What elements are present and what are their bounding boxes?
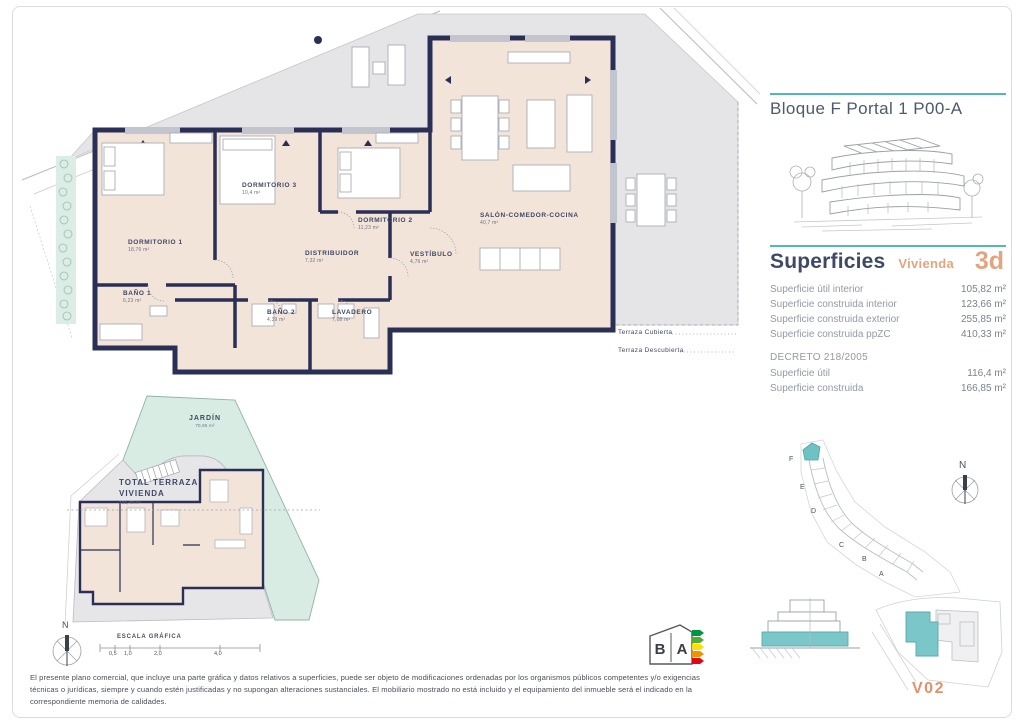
room-label-vestibulo: VESTÍBULO 4,76 m² [410,251,453,265]
block-letter-c: C [839,542,844,549]
block-letter-d: D [811,508,816,515]
room-name: BAÑO 1 [123,290,151,297]
superficies-row: Superficie construida ppZC 410,33 m² [770,327,1006,342]
room-label-salon-comedor-cocina: SALÓN-COMEDOR-COCINA 40,7 m² [480,212,579,226]
room-area: 18,76 m² [128,247,183,253]
building-section-diagram [750,596,862,674]
terraza-total-area: 131,48 m² [119,500,198,506]
decreto-heading: DECRETO 218/2005 [770,352,868,363]
row-value: 255,85 m² [961,312,1006,327]
energy-letter-a: A [677,641,688,658]
terraza-total-line2: VIVIENDA [119,489,165,498]
block-letter-b: B [862,556,867,563]
room-label-dormitorio-3: DORMITORIO 3 10,4 m² [242,182,297,196]
scale-tick: 4,0 [214,651,222,657]
room-name: DISTRIBUIDOR [305,250,359,257]
scale-tick: 2,0 [154,651,162,657]
decreto-table: Superficie útil 116,4 m² Superficie cons… [770,366,1006,396]
row-value: 105,82 m² [961,282,1006,297]
row-label: Superficie útil interior [770,282,863,297]
jardin-area: 70,95 m² [175,423,235,429]
scale-tick: 0,5 [109,651,117,657]
block-letter-a: A [879,571,884,578]
row-value: 166,85 m² [961,381,1006,396]
room-label-distribuidor: DISTRIBUIDOR 7,32 m² [305,250,359,264]
room-name: VESTÍBULO [410,251,453,258]
superficies-row: Superficie construida interior 123,66 m² [770,297,1006,312]
row-value: 410,33 m² [961,327,1006,342]
room-name: DORMITORIO 2 [358,217,413,224]
row-label: Superficie construida interior [770,297,897,312]
superficies-title: Superficies [770,250,885,273]
jardin-label: JARDÍN 70,95 m² [175,414,235,430]
superficies-header: Superficies Vivienda 3d [770,250,1006,274]
footer-disclaimer: El presente plano comercial, que incluye… [30,672,728,707]
room-label-dormitorio-2: DORMITORIO 2 11,23 m² [358,217,413,231]
highlighted-unit [906,612,938,656]
row-label: Superficie útil [770,366,830,381]
row-label: Superficie construida exterior [770,312,900,327]
row-label: Superficie construida [770,381,863,396]
escala-grafica-label: ESCALA GRÁFICA [117,634,182,640]
room-area: 6,23 m² [123,298,151,304]
room-area: 7,32 m² [305,258,359,264]
row-value: 116,4 m² [967,366,1006,381]
row-label: Superficie construida ppZC [770,327,891,342]
room-name: SALÓN-COMEDOR-COCINA [480,212,579,219]
room-area: 40,7 m² [480,220,579,226]
room-label-bano-1: BAÑO 1 6,23 m² [123,290,151,304]
room-label-bano-2: BAÑO 2 4,39 m² [267,309,295,323]
terraza-total-line1: TOTAL TERRAZA [119,478,198,487]
room-area: 4,39 m² [267,317,295,323]
room-area: 11,23 m² [358,225,413,231]
vivienda-code: 3d [975,247,1004,276]
room-name: DORMITORIO 3 [242,182,297,189]
block-letter-f: F [789,456,793,463]
room-label-dormitorio-1: DORMITORIO 1 18,76 m² [128,239,183,253]
block-letter-e: E [800,484,805,491]
room-name: LAVADERO [332,309,372,316]
building-illustration [772,124,1004,236]
decreto-row: Superficie construida 166,85 m² [770,381,1006,396]
site-location-map: N F E D C B A [765,432,1015,617]
room-name: BAÑO 2 [267,309,295,316]
jardin-name: JARDÍN [189,415,221,422]
room-area: 7,08 m² [332,317,372,323]
room-label-lavadero: LAVADERO 7,08 m² [332,309,372,323]
energy-letter-b: B [655,641,666,658]
superficies-row: Superficie útil interior 105,82 m² [770,282,1006,297]
terraza-cubierta-label: Terraza Cubierta [618,329,672,336]
highlighted-block-f [803,443,820,460]
teal-divider-superficies [770,245,1006,247]
room-name: DORMITORIO 1 [128,239,183,246]
row-value: 123,66 m² [961,297,1006,312]
room-area: 10,4 m² [242,190,297,196]
terraza-descubierta-label: Terraza Descubierta [618,347,684,354]
scale-tick: 1,0 [124,651,132,657]
decreto-row: Superficie útil 116,4 m² [770,366,1006,381]
vivienda-label: Vivienda [898,256,954,271]
teal-divider-top [770,93,1006,95]
sitemap-north-label: N [959,460,966,471]
unit-reference-label: V02 [912,680,945,698]
compass-north-label: N [62,620,69,630]
main-floorplan: DORMITORIO 1 18,76 m² DORMITORIO 2 11,23… [20,8,760,408]
superficies-table: Superficie útil interior 105,82 m² Super… [770,282,1006,342]
scale-area: N ESCALA GRÁFICA 0,5 1,0 2,0 4,0 [45,618,275,678]
compass-and-scalebar [45,618,275,678]
page-title: Bloque F Portal 1 P00-A [770,99,1006,119]
mini-siteplan: JARDÍN 70,95 m² TOTAL TERRAZA VIVIENDA 1… [35,390,345,645]
energy-rating-icon: B A [646,622,708,670]
highlighted-floor [762,632,848,646]
superficies-row: Superficie construida exterior 255,85 m² [770,312,1006,327]
terraza-total-label: TOTAL TERRAZA VIVIENDA 131,48 m² [119,478,198,506]
room-area: 4,76 m² [410,259,453,265]
